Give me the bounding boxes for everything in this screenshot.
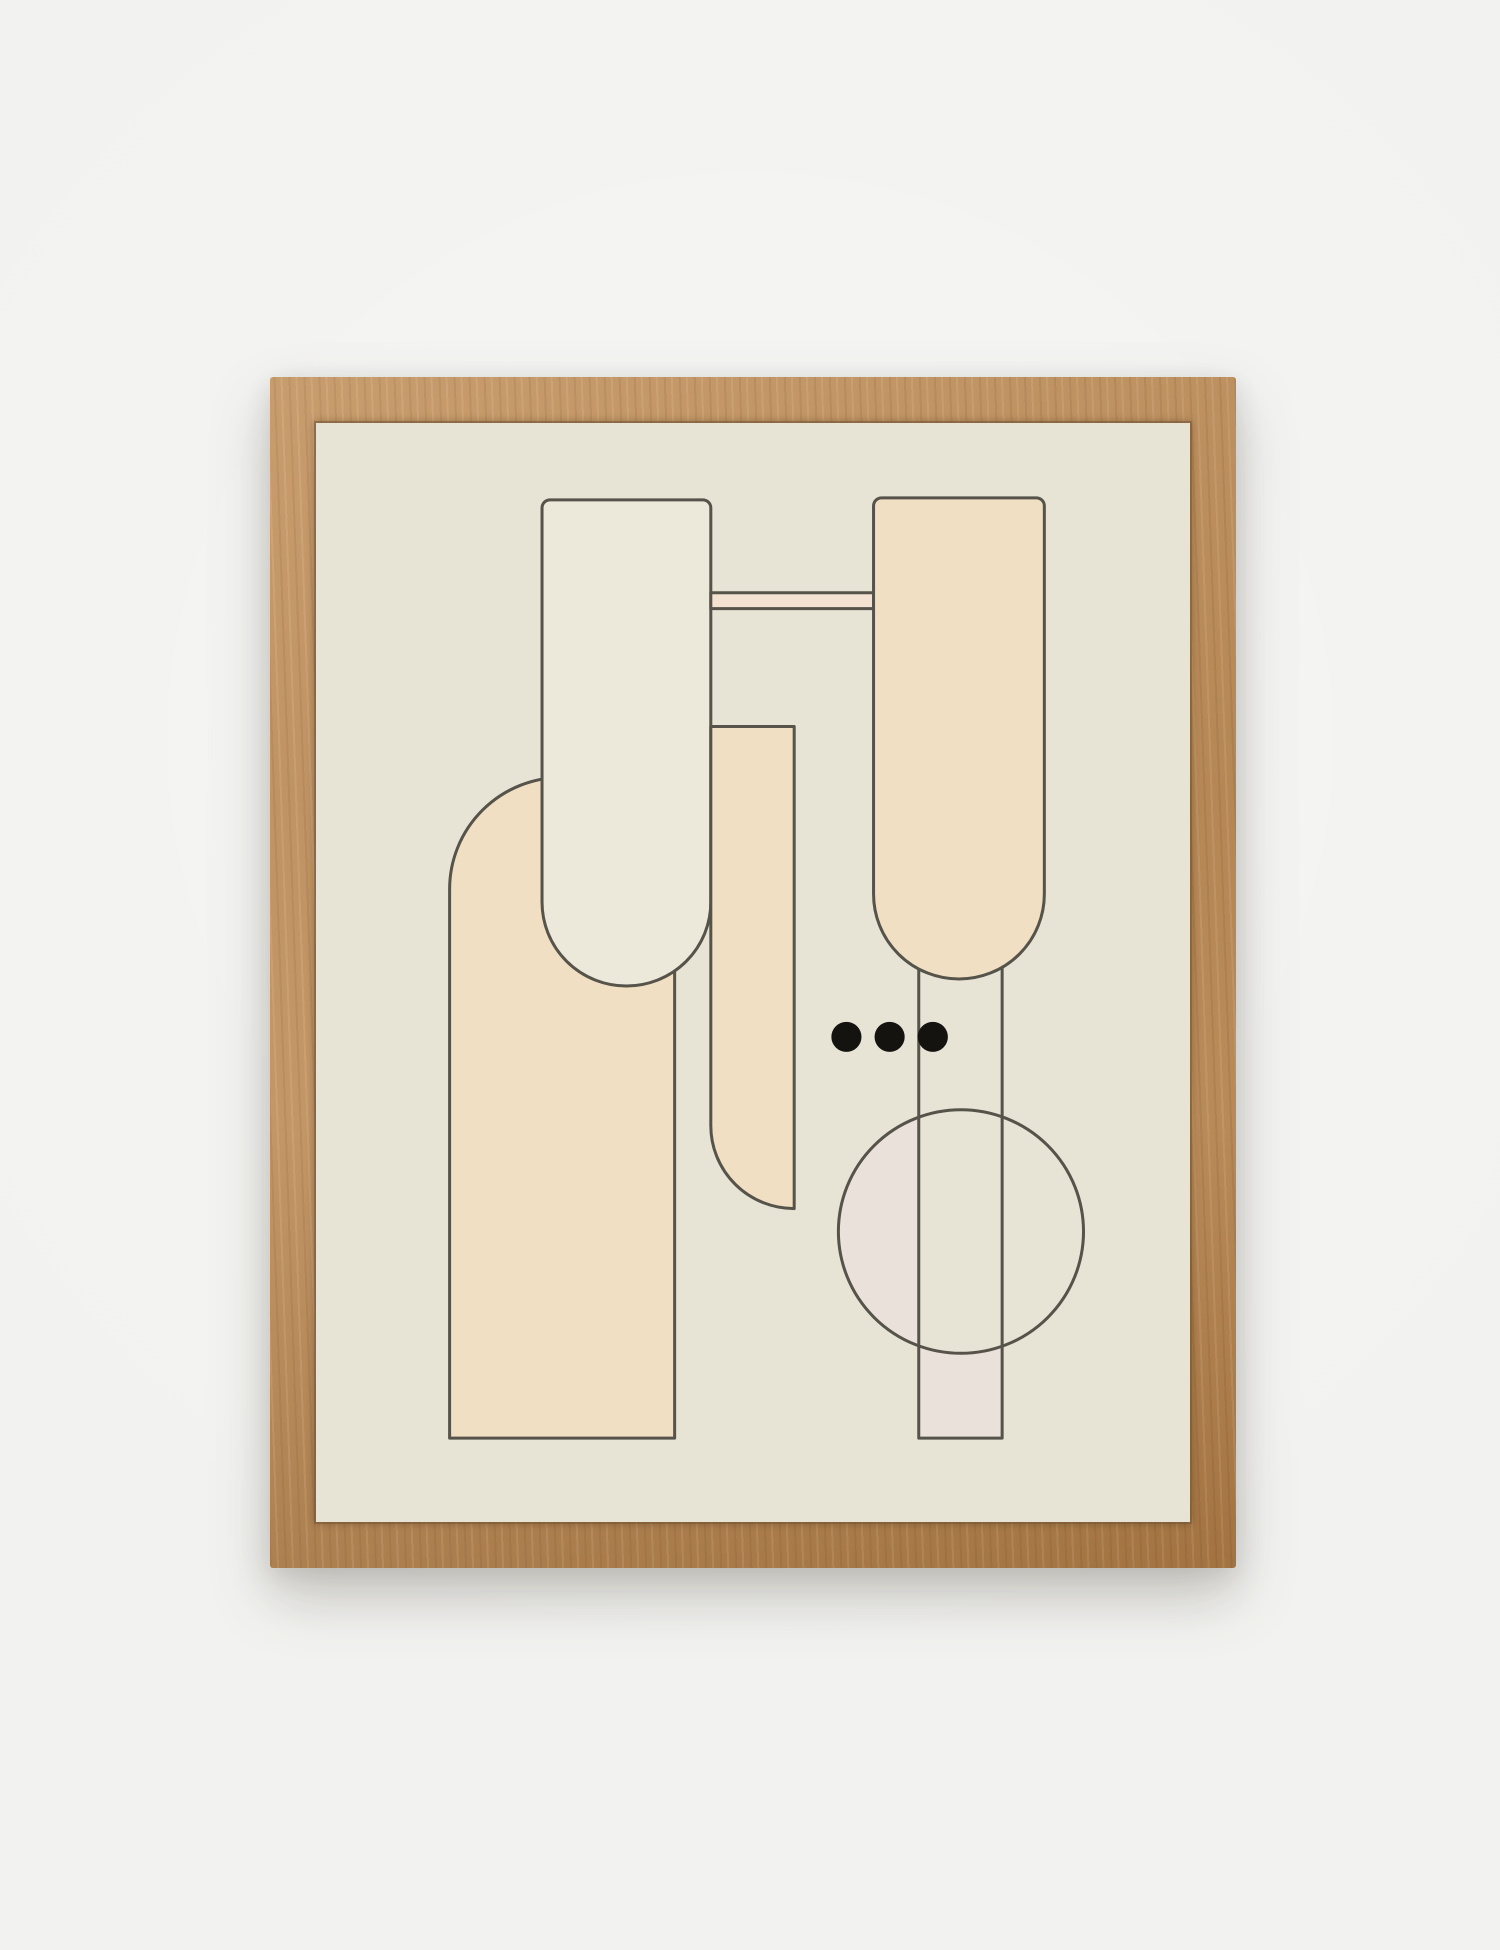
blush-half-disc-shape [837,1117,919,1347]
oak-picture-frame [270,377,1236,1568]
connector-bar-shape [711,593,874,609]
three-dots [831,1022,948,1052]
artwork-shapes [450,498,1084,1438]
wall-background [0,0,1500,1950]
right-pill-shape [874,498,1045,979]
abstract-artwork [316,423,1190,1522]
middle-column-shape [711,726,794,1208]
art-print-canvas [316,423,1190,1522]
left-pill-shape [542,500,711,986]
